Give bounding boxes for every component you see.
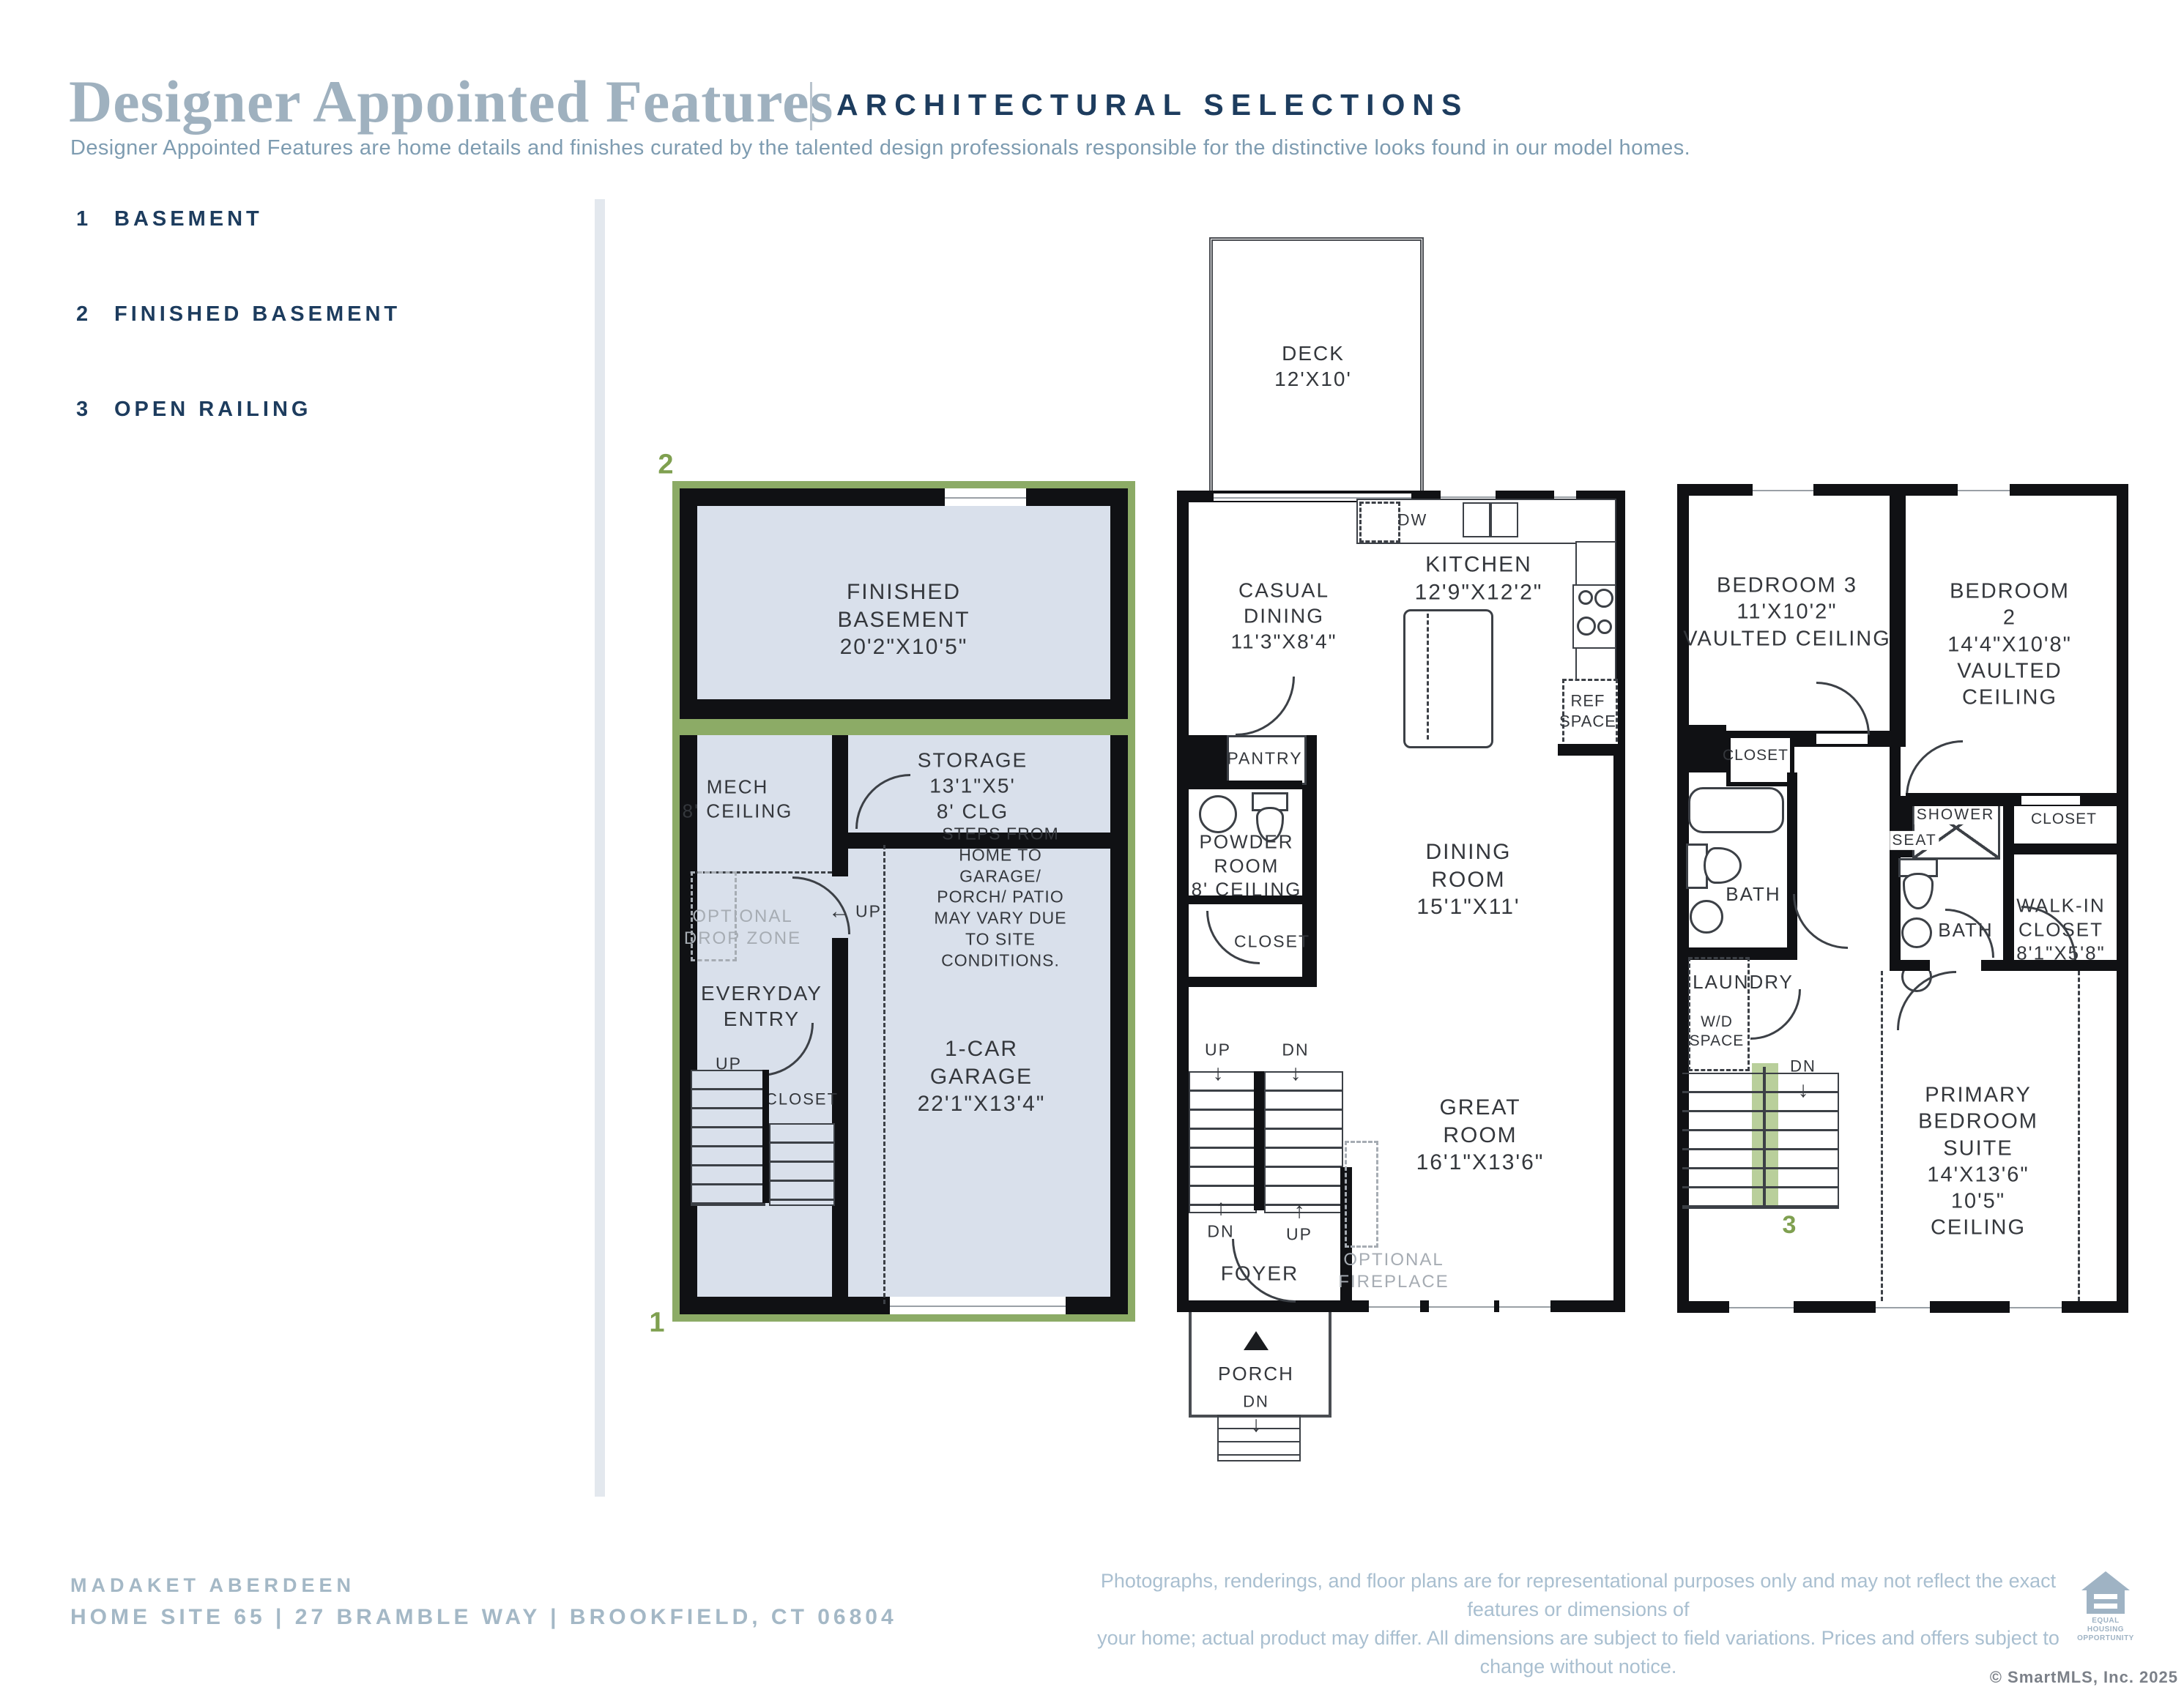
finished-basement-label: FINISHED BASEMENT 20'2"X10'5" <box>837 578 970 661</box>
legend-item-finished-basement: 2 FINISHED BASEMENT <box>76 302 401 327</box>
page-title: Designer Appointed Features <box>69 67 833 136</box>
kitchen-island <box>1403 609 1493 748</box>
title-divider <box>810 82 812 130</box>
island-dashed-line <box>1427 614 1429 740</box>
stove-burner <box>1578 590 1593 605</box>
closet-right-bottom-wall <box>2014 843 2117 854</box>
basement-separator-wall <box>680 699 1128 719</box>
basement-up-door-label: UP <box>855 901 882 923</box>
great-room-window <box>1369 1300 1420 1312</box>
second-floor-window <box>2010 1301 2062 1313</box>
legend-number: 1 <box>76 207 114 231</box>
porch-dn-label: DN <box>1243 1391 1269 1412</box>
garage-label: 1-CAR GARAGE 22'1"X13'4" <box>918 1035 1046 1118</box>
up-arrow-icon: ↑ <box>1294 1199 1305 1224</box>
entry-triangle-icon <box>1244 1331 1269 1350</box>
stairs-dn-label-bottom: DN <box>1207 1221 1234 1243</box>
bedroom2-label: BEDROOM 2 14'4"X10'8" VAULTED CEILING <box>1947 578 2072 710</box>
equal-housing-logo: EQUAL HOUSING OPPORTUNITY <box>2077 1571 2134 1643</box>
finished-basement-highlight-band <box>672 719 1135 735</box>
bedroom-divider-wall <box>1890 496 1906 731</box>
stairs-dn-label: DN <box>1282 1040 1309 1061</box>
stove-burner <box>1594 589 1613 608</box>
primary-dashed-line-left <box>1881 971 1883 1301</box>
bedroom2-window <box>1958 484 2010 496</box>
bath-left-wall <box>1787 772 1797 960</box>
closet-right-label: CLOSET <box>2031 810 2097 829</box>
up-left-arrow-icon: ← <box>828 899 850 924</box>
legend-label: OPEN RAILING <box>114 398 311 422</box>
down-arrow-icon: ↓ <box>1290 1061 1301 1086</box>
kitchen-sink-right <box>1490 502 1518 537</box>
page-description: Designer Appointed Features are home det… <box>70 136 1690 160</box>
marker-finished-basement: 2 <box>658 447 675 483</box>
bathtub <box>1688 787 1784 833</box>
garage-door-opening <box>890 1297 1066 1314</box>
bedroom3-door-opening <box>1816 734 1868 744</box>
garage-dashed-line <box>883 845 885 1304</box>
kitchen-end-wall <box>1558 744 1625 756</box>
stairs-center-wall <box>1254 1071 1264 1210</box>
vertical-divider <box>595 199 605 1497</box>
powder-room-label: POWDER ROOM 8' CEILING <box>1192 830 1302 901</box>
second-floor-window <box>1876 1301 1930 1313</box>
home-site-address: HOME SITE 65 | 27 BRAMBLE WAY | BROOKFIE… <box>70 1605 897 1630</box>
bedroom3-window <box>1753 484 1813 496</box>
pantry-side-wall <box>1189 735 1227 782</box>
ref-space-label: REF SPACE <box>1559 691 1616 731</box>
storage-room-label: STORAGE 13'1"X5' 8' CLG <box>918 748 1028 824</box>
second-floor-stairs <box>1682 1073 1839 1209</box>
basement-stairs-left-run <box>691 1070 765 1206</box>
disclaimer-text: Photographs, renderings, and floor plans… <box>1091 1567 2065 1687</box>
hall-wall <box>1890 747 1901 960</box>
great-room-window <box>1429 1300 1494 1312</box>
copyright-text: © SmartMLS, Inc. 2025 <box>1990 1668 2178 1687</box>
closet-bottom-wall <box>1189 977 1317 987</box>
closet-top-wall <box>1189 895 1302 904</box>
basement-window <box>945 488 1026 506</box>
kitchen-sink-left <box>1463 502 1490 537</box>
powder-sink <box>1199 795 1237 833</box>
stairs-down-run <box>1264 1071 1343 1213</box>
marker-basement: 1 <box>649 1306 666 1341</box>
equal-housing-label: EQUAL HOUSING OPPORTUNITY <box>2077 1617 2134 1643</box>
optional-drop-zone-label: OPTIONAL DROP ZONE <box>684 906 801 950</box>
first-floor-plan: DECK 12'X10' DW REF SPACE KITCHEN 12'9"X… <box>1177 237 1625 1476</box>
open-railing-line <box>1763 1067 1766 1206</box>
second-floor-plan: BEDROOM 3 11'X10'2" VAULTED CEILING BEDR… <box>1677 484 2128 1313</box>
basement-stairs-divider <box>762 1070 769 1203</box>
bedroom3-label: BEDROOM 3 11'X10'2" VAULTED CEILING <box>1683 573 1891 652</box>
kitchen-label: KITCHEN 12'9"X12'2" <box>1415 551 1543 606</box>
primary-suite-label: PRIMARY BEDROOM SUITE 14'X13'6" 10'5" CE… <box>1903 1081 2054 1241</box>
shower-label: SHOWER <box>1914 805 1997 824</box>
stairs-up-run <box>1189 1071 1257 1213</box>
great-room-label: GREAT ROOM 16'1"X13'6" <box>1408 1094 1553 1177</box>
closet-corner-block <box>1679 725 1726 772</box>
bedroom3-closet-label: CLOSET <box>1723 746 1789 765</box>
walkin-left-wall <box>2003 796 2014 960</box>
stairs-up-label: UP <box>1205 1040 1231 1061</box>
bath-left-label: BATH <box>1726 882 1780 906</box>
legend-item-basement: 1 BASEMENT <box>76 207 263 231</box>
second-floor-window <box>1729 1301 1794 1313</box>
up-arrow-icon: ↑ <box>1216 1196 1227 1221</box>
porch-steps <box>1217 1415 1301 1461</box>
basement-center-wall <box>832 735 848 1304</box>
primary-top-wall <box>1890 960 2117 971</box>
stove-burner <box>1577 617 1596 636</box>
marker-open-railing: 3 <box>1783 1210 1798 1241</box>
optional-fireplace-box <box>1345 1141 1378 1248</box>
basement-closet-label: CLOSET <box>765 1089 839 1109</box>
closet-right-opening <box>2021 796 2080 805</box>
steps-note-label: STEPS FROM HOME TO GARAGE/ PORCH/ PATIO … <box>933 823 1068 970</box>
great-room-window <box>1499 1300 1550 1312</box>
legend-label: BASEMENT <box>114 207 263 231</box>
wd-space-label: W/D SPACE <box>1690 1013 1745 1051</box>
kitchen-optional-cabinet <box>1359 502 1400 543</box>
equal-housing-house-icon <box>2087 1589 2125 1614</box>
down-arrow-icon: ↓ <box>1213 1061 1224 1086</box>
casual-dining-label: CASUAL DINING 11'3"X8'4" <box>1230 578 1337 655</box>
equal-housing-roof-icon <box>2081 1571 2130 1590</box>
dining-room-label: DINING ROOM 15'1"X11' <box>1390 838 1547 921</box>
basement-floor-plan: FINISHED BASEMENT 20'2"X10'5" MECH 8' CE… <box>672 481 1135 1322</box>
legend-label: FINISHED BASEMENT <box>114 302 401 327</box>
powder-top-wall <box>1189 781 1302 789</box>
primary-door-opening <box>1930 960 1981 971</box>
deck-label: DECK 12'X10' <box>1274 340 1352 392</box>
legend-number: 3 <box>76 398 114 422</box>
basement-stairs-right-run <box>769 1123 835 1206</box>
bath-left-sink <box>1690 900 1723 934</box>
optional-fireplace-label: OPTIONAL FIREPLACE <box>1338 1249 1449 1293</box>
community-name: MADAKET ABERDEEN <box>70 1574 355 1597</box>
dishwasher-label: DW <box>1398 510 1428 530</box>
porch-label: PORCH <box>1218 1362 1294 1386</box>
pantry-label: PANTRY <box>1227 748 1302 770</box>
page: Designer Appointed Features ARCHITECTURA… <box>0 0 2184 1687</box>
legend-number: 2 <box>76 302 114 327</box>
bath-mid-sink <box>1901 917 1932 948</box>
page-subtitle: ARCHITECTURAL SELECTIONS <box>836 88 1468 122</box>
stove-burner <box>1597 619 1612 634</box>
primary-dashed-line-right <box>2078 971 2080 1301</box>
legend-item-open-railing: 3 OPEN RAILING <box>76 398 311 422</box>
mech-room-label: MECH 8' CEILING <box>683 775 793 823</box>
shower-seat-label: SEAT <box>1890 831 1939 850</box>
